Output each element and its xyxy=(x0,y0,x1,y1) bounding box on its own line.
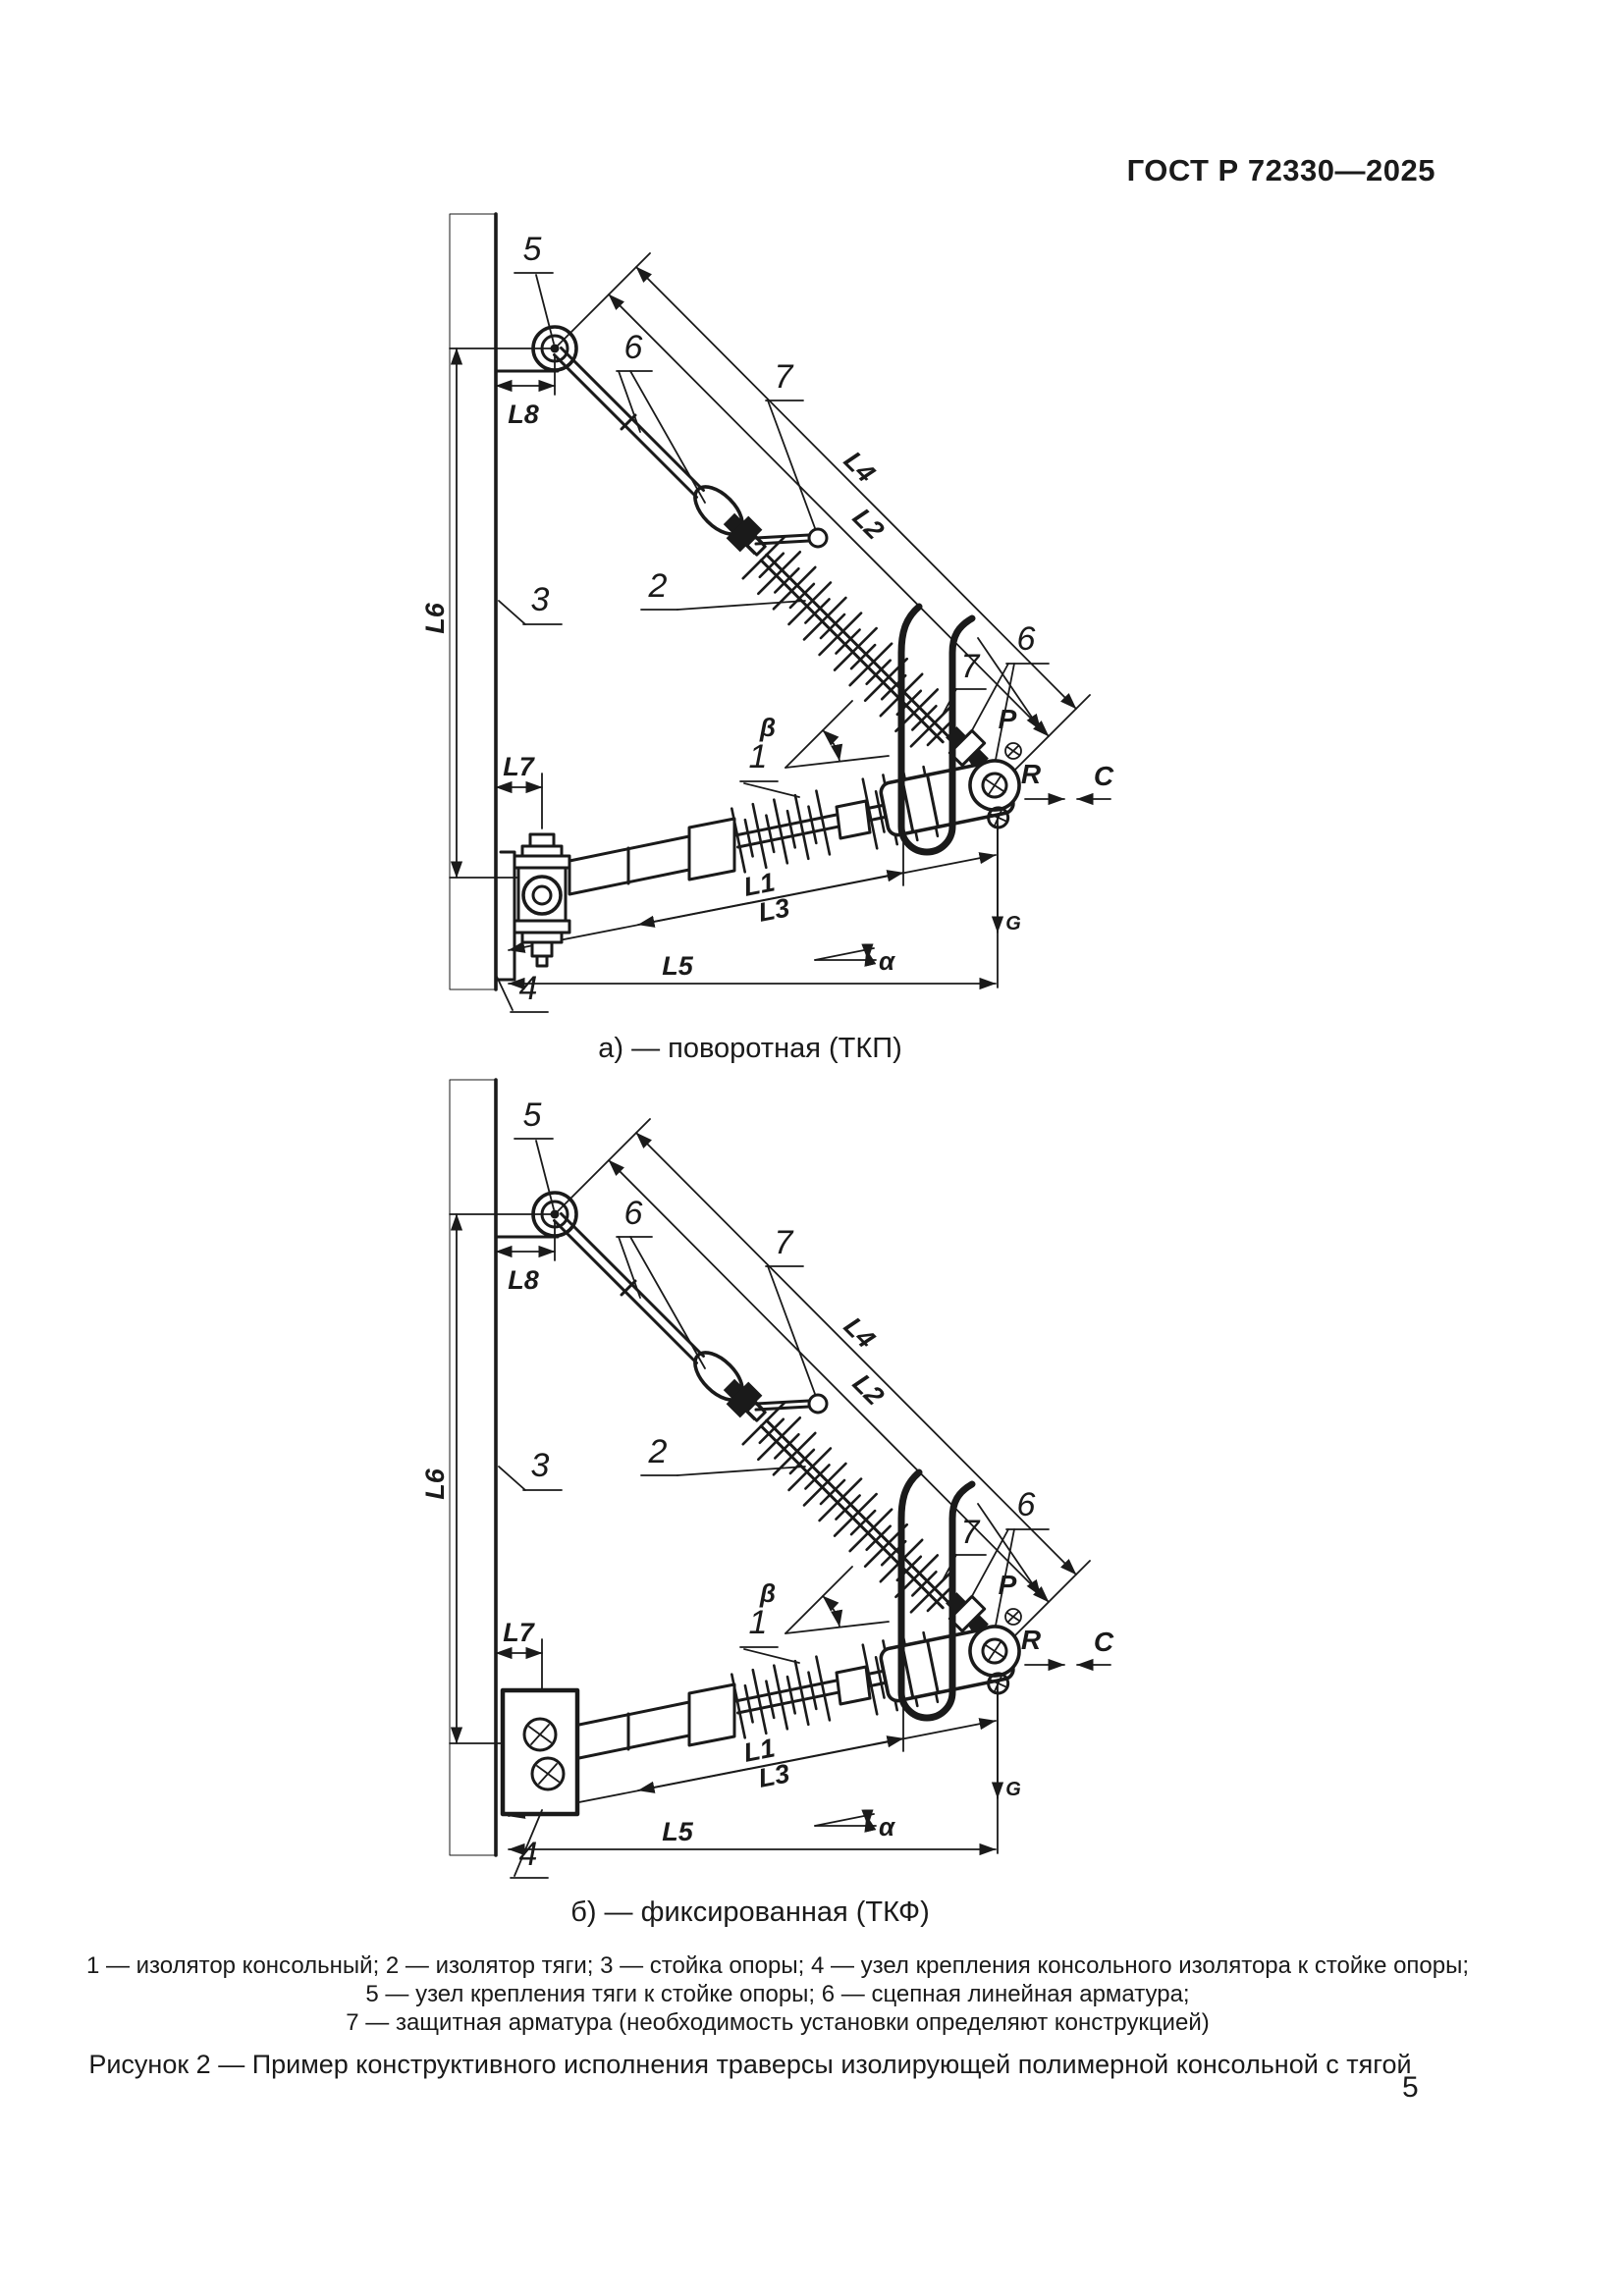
dim-label-L5: L5 xyxy=(662,951,693,981)
bolt-symbol xyxy=(1005,743,1021,759)
dim-label-L8: L8 xyxy=(508,400,539,429)
part-label-5: 5 xyxy=(523,231,542,268)
dim-label-L7: L7 xyxy=(503,752,535,781)
bottom-node-fixed xyxy=(503,1690,577,1876)
force-label-P: P xyxy=(999,704,1017,734)
part-label-6-upper: 6 xyxy=(624,329,643,366)
diagram-pivoting-tkp: 5 L8 L6 3 xyxy=(393,147,1218,1080)
force-label-C: C xyxy=(1094,761,1114,791)
part-label-3: 3 xyxy=(531,581,550,618)
force-label-G: G xyxy=(1005,913,1021,934)
legend-line-2: 5 — узел крепления тяги к стойке опоры; … xyxy=(61,1980,1494,2008)
page-number: 5 xyxy=(1402,2071,1419,2105)
dim-label-L3: L3 xyxy=(756,892,792,927)
cantilever-rod xyxy=(569,819,734,894)
part-label-6-lower: 6 xyxy=(1017,620,1036,658)
figure-legend: 1 — изолятор консольный; 2 — изолятор тя… xyxy=(61,1951,1494,2037)
alpha-angle: α xyxy=(815,946,896,976)
protective-fitting-upper xyxy=(756,529,827,547)
part-label-4: 4 xyxy=(519,970,538,1007)
caption-variant-b: б) — фиксированная (ТКФ) xyxy=(61,1896,1439,1929)
legend-line-3: 7 — защитная арматура (необходимость уст… xyxy=(61,2008,1494,2037)
document-page: ГОСТ Р 72330—2025 5 xyxy=(0,0,1624,2296)
dim-label-L2: L2 xyxy=(847,503,890,545)
part-label-7-lower: 7 xyxy=(961,648,981,685)
beta-angle: β xyxy=(759,701,889,768)
force-label-R: R xyxy=(1021,759,1042,789)
diagram-fixed-tkf xyxy=(393,1013,1218,1946)
part-label-7-upper: 7 xyxy=(775,358,794,396)
part-label-1: 1 xyxy=(749,738,768,775)
dim-label-L6: L6 xyxy=(420,602,450,633)
figure-caption: Рисунок 2 — Пример конструктивного испол… xyxy=(61,2050,1439,2080)
label-4-leader xyxy=(497,977,513,1010)
legend-line-1: 1 — изолятор консольный; 2 — изолятор тя… xyxy=(61,1951,1494,1980)
dim-label-L4: L4 xyxy=(839,446,881,488)
part-label-2: 2 xyxy=(648,567,668,605)
angle-label-alpha: α xyxy=(879,946,896,976)
